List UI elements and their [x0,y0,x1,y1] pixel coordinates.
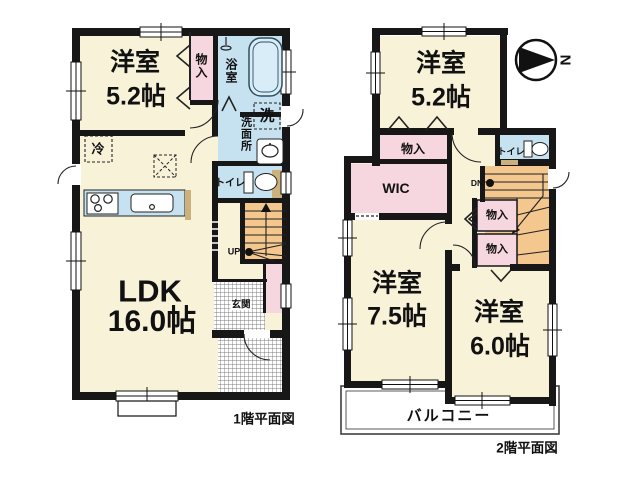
washbasin-icon [257,139,283,164]
kitchen-sink-icon [131,194,173,212]
bathtub-icon [249,38,282,96]
toilet-door-strip-f2 [501,160,518,165]
room-label-closet-b: 物入 [486,245,508,256]
room-label-western75-name: 洋室 [372,272,422,297]
floorplan: 洋室 5.2帖 物入 浴室 洗面所 洗 トイレ 冷 UP LDK 16.0帖 玄… [0,0,636,480]
floor1-caption: 1階平面図 [233,412,295,426]
room-label-western52-f2-size: 5.2帖 [411,86,471,111]
floor1-plan [58,23,303,416]
room-label-toilet-f1: トイレ [215,179,245,189]
room-label-bath: 浴室 [225,58,237,84]
room-label-closet-upper: 物入 [401,143,425,155]
balcony-label: バルコニー [407,409,492,424]
compass-north-label: N [558,55,573,66]
room-label-western52-f2-name: 洋室 [416,52,466,77]
stairs-down-label: DN [471,179,483,188]
room-label-entrance: 玄関 [230,300,251,310]
entrance-step [118,401,176,416]
porch-area [218,338,282,392]
toilet-icon-f2 [524,141,548,157]
room-label-closet-f1: 物入 [195,53,207,79]
stairs-up-label: UP [228,248,241,257]
hall-area [452,132,500,162]
room-label-wic: WIC [382,181,409,195]
kitchen-counter [84,190,191,220]
floorplan-drawing [0,0,636,480]
floor2-caption: 2階平面図 [496,441,558,455]
room-label-washroom: 洗面所 [240,116,251,152]
room-label-ldk-name: LDK [118,276,182,307]
room-label-ldk-size: 16.0帖 [108,307,196,337]
room-label-western75-size: 7.5帖 [367,305,427,330]
north-arrow-icon [516,40,556,80]
stove-icon [87,193,118,214]
washer-label: 洗 [259,109,274,124]
room-label-closet-a: 物入 [486,211,508,222]
room-label-western60-size: 6.0帖 [470,335,530,360]
room-label-western60-name: 洋室 [474,301,524,326]
fridge-label: 冷 [91,143,104,156]
room-label-western-f1-size: 5.2帖 [106,85,166,110]
room-label-toilet-f2: トイレ [497,148,524,157]
room-label-western-f1-name: 洋室 [110,51,160,76]
